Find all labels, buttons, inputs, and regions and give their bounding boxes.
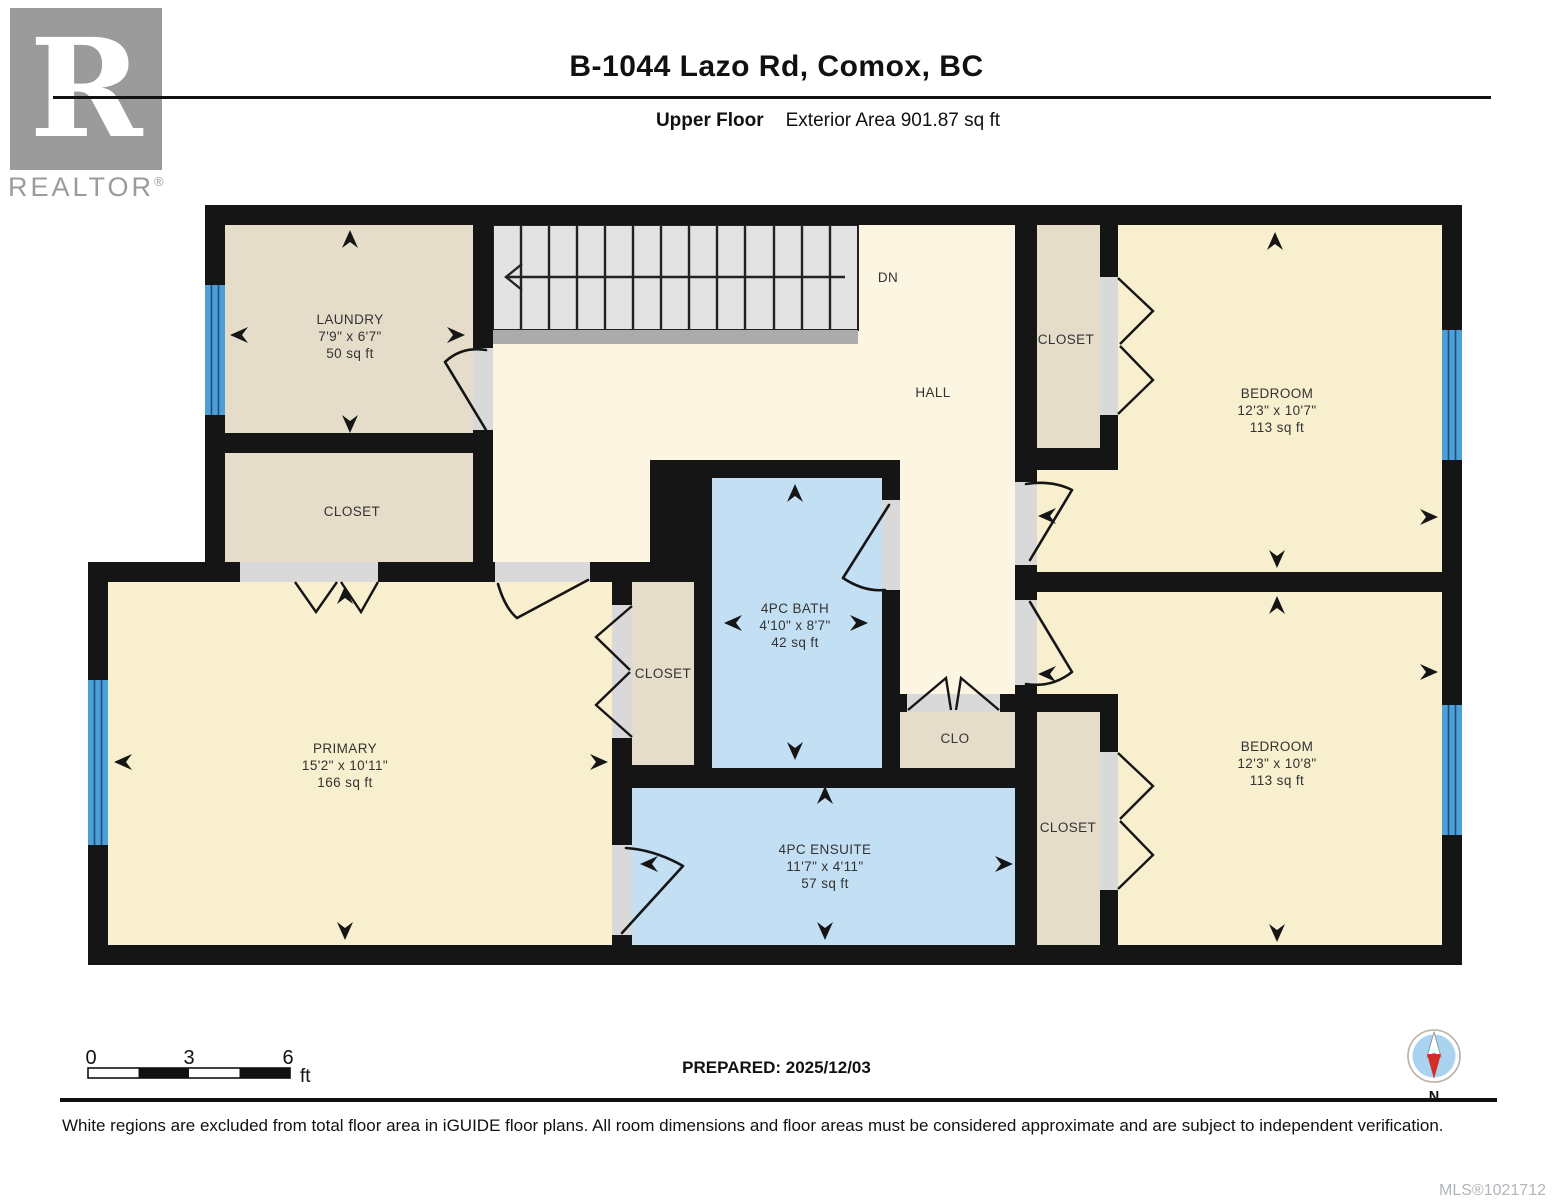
closet-bottom-right-name: CLOSET (1040, 820, 1096, 835)
scale-unit-label: ft (300, 1066, 311, 1087)
laundry-name: LAUNDRY (316, 312, 383, 327)
scale-bar: 0 3 6 ft (85, 1047, 311, 1087)
ensuite-sqft: 57 sq ft (801, 876, 848, 891)
floor-plan-drawing: LAUNDRY 7'9" x 6'7" 50 sq ft CLOSET DN H… (0, 0, 1553, 1200)
stairs-dn-label: DN (878, 270, 898, 285)
closet-top-right-name: CLOSET (1038, 332, 1094, 347)
stairs (493, 225, 858, 344)
closet-central-name: CLOSET (635, 666, 691, 681)
ensuite-dims: 11'7" x 4'11" (786, 859, 863, 874)
bedroom-top-dims: 12'3" x 10'7" (1237, 403, 1316, 418)
bedroom-bottom-name: BEDROOM (1241, 739, 1314, 754)
bath-dims: 4'10" x 8'7" (759, 618, 830, 633)
realtor-logo-icon: R (10, 8, 162, 170)
bath-name: 4PC BATH (761, 601, 829, 616)
bedroom-bottom-window (1442, 705, 1462, 835)
ensuite-name: 4PC ENSUITE (779, 842, 872, 857)
bedroom-top-name: BEDROOM (1241, 386, 1314, 401)
header-divider (53, 96, 1491, 99)
scale-tick-0: 0 (85, 1047, 96, 1069)
compass-icon: N (1408, 1030, 1460, 1105)
bath-sqft: 42 sq ft (771, 635, 818, 650)
laundry-closet-name: CLOSET (324, 504, 380, 519)
hall-name: HALL (915, 385, 950, 400)
scale-tick-6: 6 (282, 1047, 293, 1069)
laundry-sqft: 50 sq ft (326, 346, 373, 361)
bedroom-top-sqft: 113 sq ft (1250, 420, 1304, 435)
laundry-dims: 7'9" x 6'7" (318, 329, 381, 344)
primary-name: PRIMARY (313, 741, 377, 756)
bedroom-bottom-dims: 12'3" x 10'8" (1237, 756, 1316, 771)
bedroom-top-window (1442, 330, 1462, 460)
floor-plan-page: R REALTOR® B-1044 Lazo Rd, Comox, BC Upp… (0, 0, 1553, 1200)
bedroom-bottom-sqft: 113 sq ft (1250, 773, 1304, 788)
clo-name: CLO (941, 731, 970, 746)
compass-north-label: N (1429, 1089, 1439, 1105)
laundry-window (205, 285, 225, 415)
scale-tick-3: 3 (183, 1047, 194, 1069)
primary-window (88, 680, 108, 845)
realtor-logo-letter: R (10, 10, 162, 168)
primary-dims: 15'2" x 10'11" (302, 758, 388, 773)
primary-sqft: 166 sq ft (317, 775, 372, 790)
